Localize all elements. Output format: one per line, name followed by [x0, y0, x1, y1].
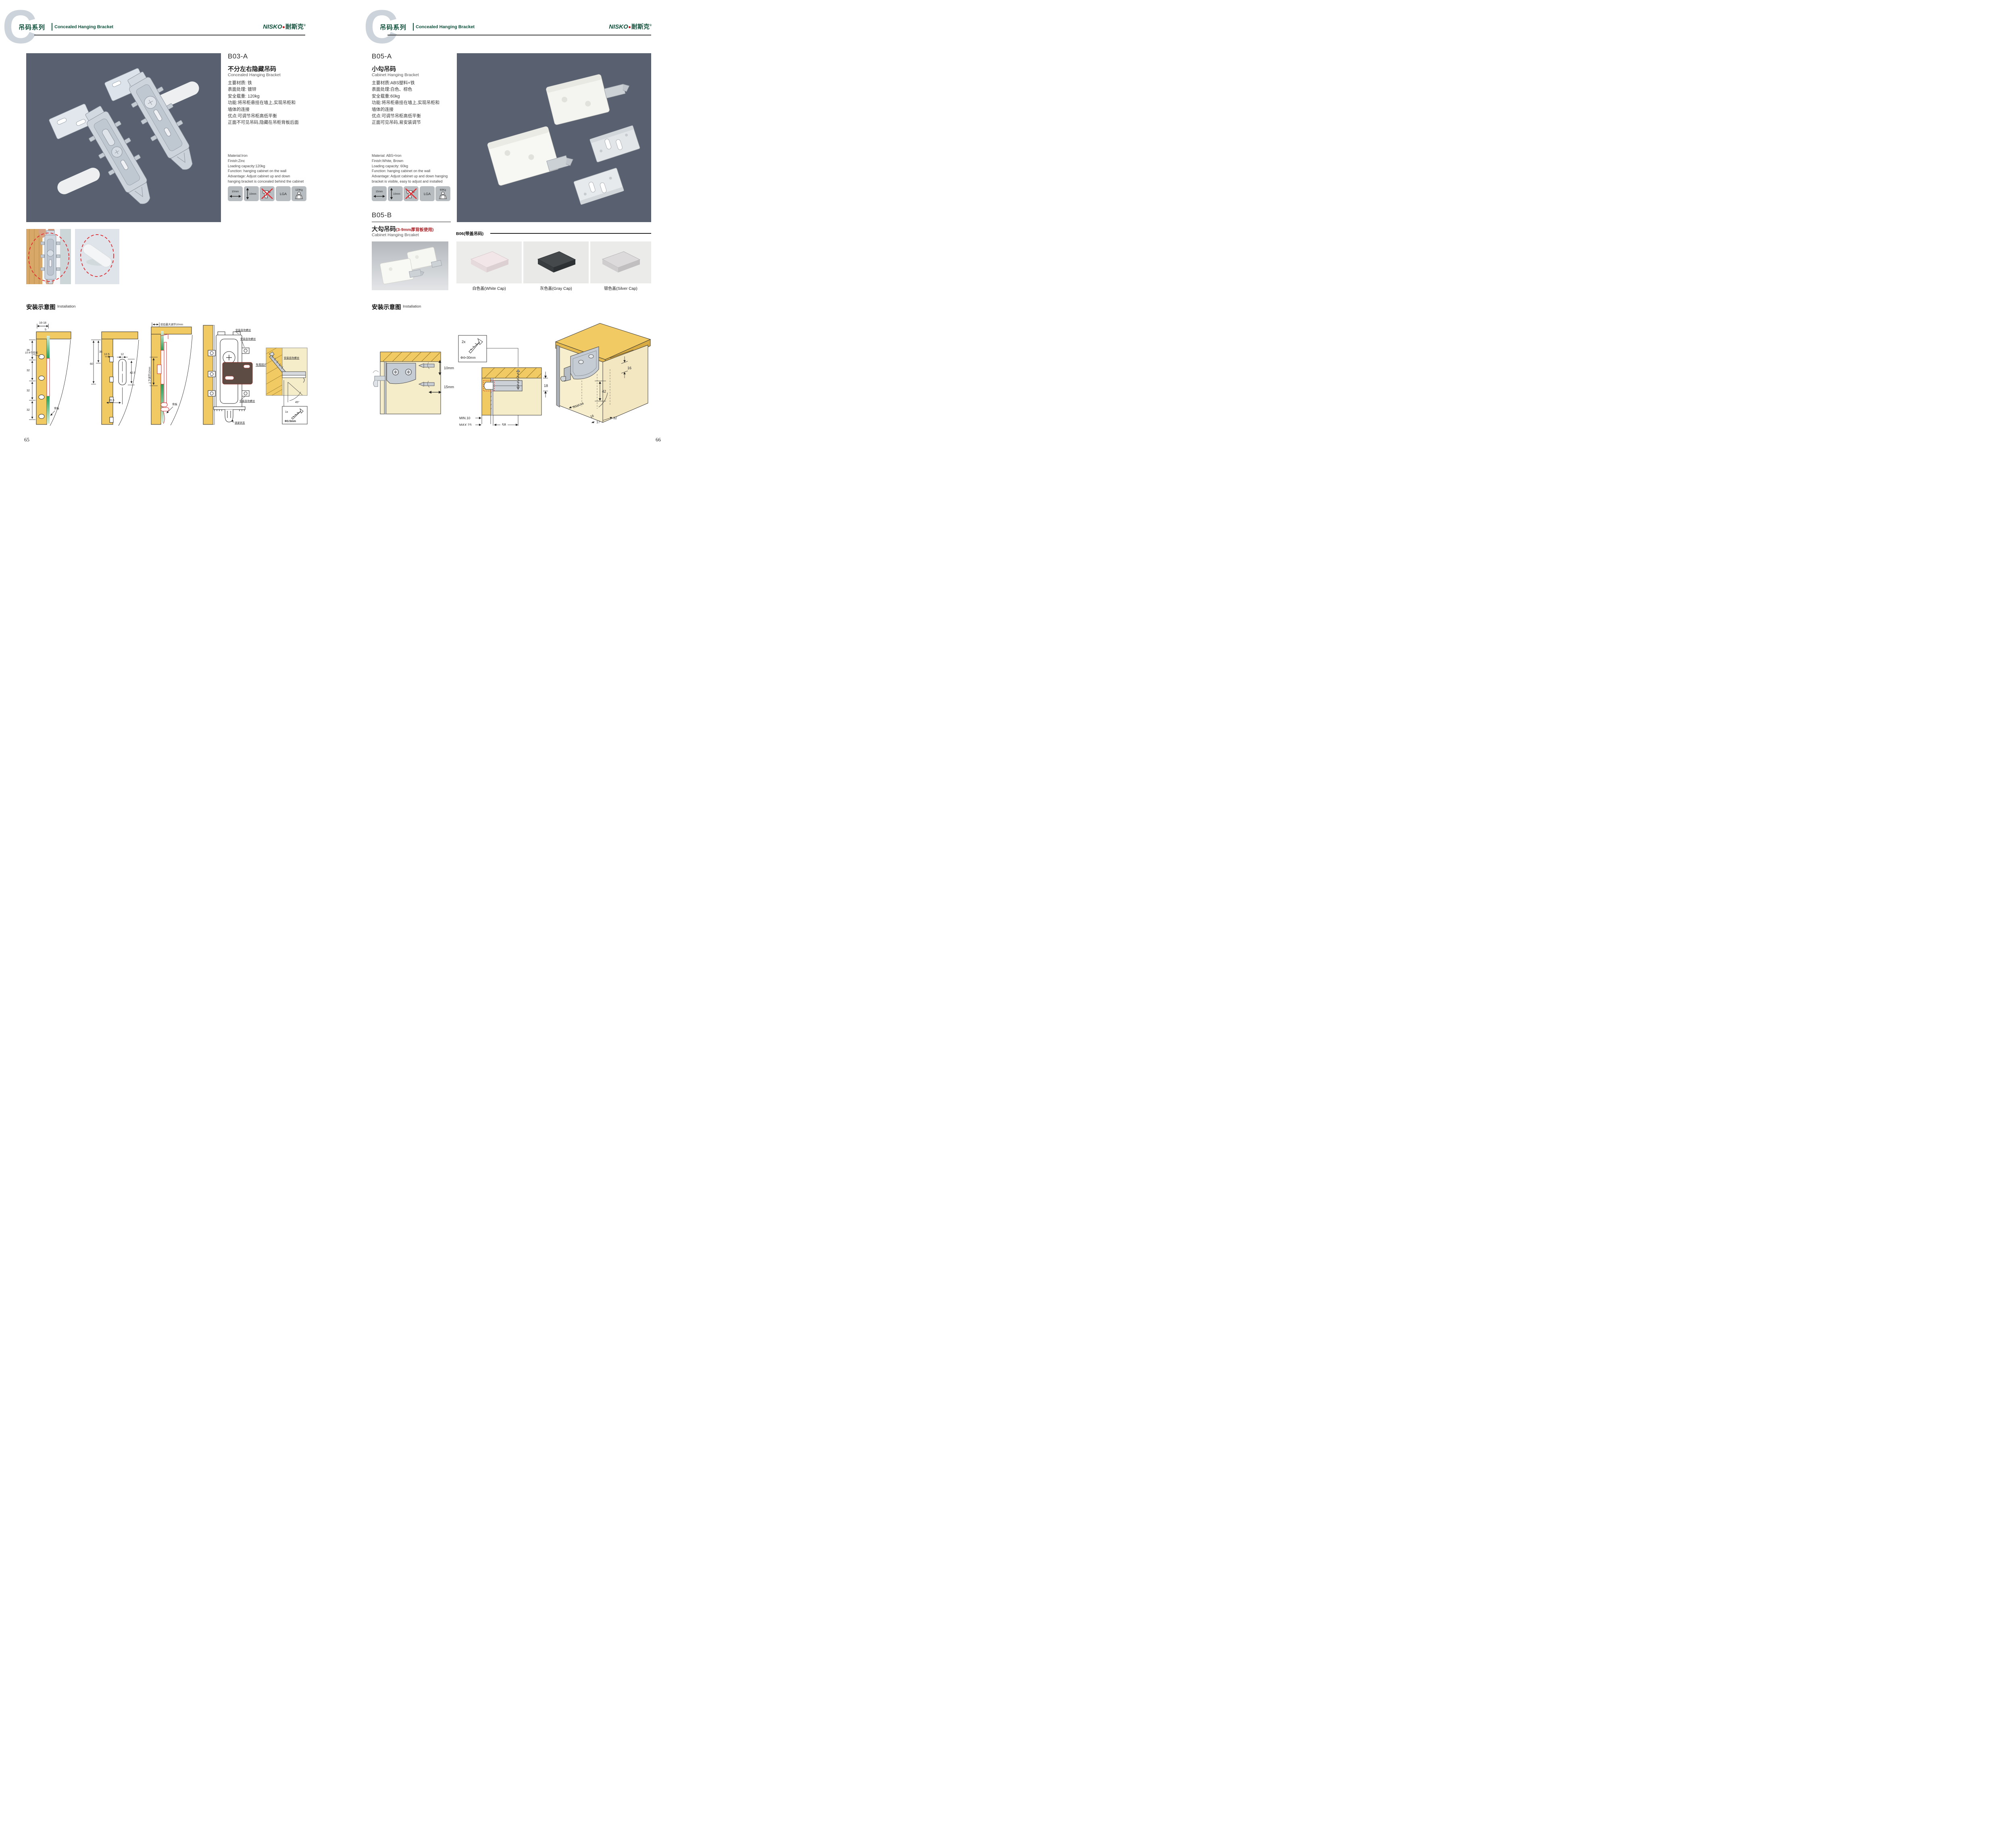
spec-line: 正面不可见吊码,隐藏在吊柜背板后面 [228, 119, 308, 126]
rdiagram3-art: 16 42 RMAX4 16 17 32 [550, 321, 656, 426]
header-rule [387, 35, 651, 35]
specs-en: Material: ABS+Iron Finish:White, Brown L… [372, 153, 456, 184]
specs-cn: 主要材质:ABS塑料+铁 表面处理:白色、棕色 安全载重:60kg 功能:将吊柜… [372, 80, 456, 126]
spec-line: bracket is visible, easy to adjust and i… [372, 179, 456, 184]
dim-12-5: 12.5 [104, 353, 110, 356]
callout-backpanel: 背板 [54, 406, 59, 410]
spec-line: 主要材质: 铁 [228, 80, 308, 86]
dim-58: 58 [502, 423, 506, 426]
spec-line: Loading capacity:120kg [228, 164, 308, 169]
install-photo-cap-art [75, 229, 119, 284]
spec-line: 主要材质:ABS塑料+铁 [372, 80, 456, 86]
b05b-note: (3-9mm厚背板使用) [396, 227, 433, 232]
screw-dia: Φ3.5mm [285, 420, 296, 423]
brand-logo-cn: 耐斯克 [631, 23, 650, 30]
panel-width-icon: 10mm [228, 186, 243, 201]
dim-42-5: 42.5 [130, 372, 135, 374]
specs-cn: 主要材质: 铁 表面处理: 镀锌 安全载重: 120kg 功能:将吊柜悬挂在墙上… [228, 80, 308, 126]
panel-height-icon: 10mm [244, 186, 259, 201]
no-drill-icon [404, 186, 419, 201]
dim-42: 42 [602, 389, 606, 393]
brand-registered-mark: ® [650, 24, 652, 27]
callout-backpanel: 背板 [172, 402, 177, 406]
series-title-cn: 吊码系列 [19, 23, 45, 31]
spec-line: 优点:可调节吊柜高低平衡 [372, 113, 456, 119]
adjust-dim-horizontal: 15mm [444, 385, 454, 389]
install-diagram-slot-dims: 60 35 12.5 12 42.5 20.5 [90, 320, 140, 428]
dim-5: 5 [45, 329, 46, 331]
callout-screw-inset: 安装自攻螺丝 [284, 356, 300, 360]
label-up-down-adjust: 上下调节10mm [148, 367, 151, 384]
spec-line: hanging bracket is concealed behind the … [228, 179, 308, 184]
install-photo-bracket-art [26, 229, 71, 284]
product-name-en: Cabinet Hanging Bracket [372, 73, 419, 77]
dim-45deg: 45° [295, 401, 300, 404]
load-capacity-icon: 120Kg [292, 186, 306, 201]
cap-label-white: 白色盖(White Cap) [456, 285, 522, 291]
screw-qty: 1x [285, 411, 288, 414]
brand-logo-dot-icon [283, 26, 285, 28]
dim-18: 18 [544, 384, 548, 388]
page-number: 66 [656, 437, 661, 443]
product-code-b05b: B05-B [372, 211, 392, 219]
no-drill-icon [260, 186, 275, 201]
spec-line: Finish:Zinc [228, 158, 308, 164]
panel-width-label: 10mm [232, 190, 239, 193]
product-name-en: Concealed Hanging Bracket [228, 73, 281, 77]
screw-dia: Φ4×30mm [460, 356, 476, 360]
spec-line: Function: hanging cabinet on the wall [372, 168, 456, 174]
cap-label-silver: 银色盖(Silver Cap) [590, 285, 651, 291]
product-photo-b05a [457, 53, 651, 222]
spec-line: Advantage: Adjust cabinet up and down ha… [372, 174, 456, 179]
b06-title: B06(带盖吊码) [456, 231, 483, 237]
spec-line: 表面处理:白色、棕色 [372, 86, 456, 93]
spec-line: Material: ABS+Iron [372, 153, 456, 158]
spec-line: Finish:White, Brown [372, 158, 456, 164]
product-name-en-b05b: Cabinet Hanging Brcaket [372, 233, 419, 237]
product-name-cn: 不分左右隐藏吊码 [228, 64, 276, 73]
panel-height-label: 10mm [249, 193, 256, 196]
cap-label-gray: 灰色盖(Gray Cap) [523, 285, 589, 291]
brand-logo: NISKO耐斯克® [259, 22, 306, 31]
install-diagram-isometric: 16 42 RMAX4 16 17 32 [550, 321, 656, 426]
cap-photo-gray [523, 241, 589, 283]
header-divider [413, 23, 414, 31]
b05b-underline [372, 222, 451, 222]
installation-title-cn: 安装示意图 [26, 303, 56, 311]
rdiagram2-art: 2x Φ4×30mm 18 MIN.10 [458, 333, 550, 426]
spec-line: 墙体的连接 [228, 106, 308, 113]
panel-height-label: 10mm [393, 193, 400, 196]
diagram4-art: 安装自攻螺丝 安装自攻螺丝 安装自攻螺丝 锁紧状态 [202, 320, 256, 428]
installation-title-cn: 安装示意图 [372, 303, 401, 311]
install-detail-inset: 安装自攻螺丝 45° 1x Φ3.5mm [263, 342, 310, 426]
install-diagram-adjust: 前后最大调节10mm 上下调节10mm 背板 [147, 320, 196, 428]
load-label: 120Kg [295, 189, 303, 191]
spec-line: 墙体的连接 [372, 106, 456, 113]
b06-rule [490, 233, 651, 234]
product-name-cn-b05b: 大勾吊码(3-9mm厚背板使用) [372, 225, 433, 233]
callout-lock-state: 锁紧状态 [235, 421, 245, 424]
catalog-spread: C 吊码系列 Concealed Hanging Bracket NISKO耐斯… [0, 0, 676, 462]
lga-label: LGA [423, 192, 430, 196]
panel-width-icon: 15mm [372, 186, 387, 201]
product-photo-b03a [26, 53, 221, 222]
spec-line: 功能:将吊柜悬挂在墙上,实现吊柜和 [372, 100, 456, 106]
dim-32: 32 [27, 389, 30, 392]
dim-32: 32 [613, 416, 617, 420]
load-capacity-icon: 60Kg [435, 186, 450, 201]
dim-35: 35 [99, 351, 102, 354]
spec-line: 表面处理: 镀锌 [228, 86, 308, 93]
callout-screw-top2: 安装自攻螺丝 [240, 337, 256, 341]
spec-line: Material:Iron [228, 153, 308, 158]
install-photo-bracket [26, 229, 71, 284]
lga-icon: LGA [276, 186, 291, 201]
product-photo-b03a-art [26, 53, 221, 222]
dim-min10: MIN.10 [459, 416, 471, 420]
product-name-cn: 小勾吊码 [372, 64, 396, 73]
dim-max23: MAX.23 [459, 423, 472, 426]
brand-logo-dot-icon [629, 26, 631, 28]
label-front-back-adjust: 前后最大调节10mm [160, 322, 183, 326]
diagram3-art: 前后最大调节10mm 上下调节10mm 背板 [147, 320, 196, 428]
dim-20-5: 20.5 [109, 399, 115, 402]
callout-screw-bottom: 安装自攻螺丝 [240, 399, 255, 403]
inset-art: 安装自攻螺丝 45° 1x Φ3.5mm [263, 342, 310, 426]
spec-line: 功能:将吊柜悬挂在墙上,实现吊柜和 [228, 100, 308, 106]
load-label: 60Kg [440, 189, 446, 191]
install-diagram-hook: 10mm 15mm [372, 341, 455, 423]
brand-logo: NISKO耐斯克® [605, 22, 652, 31]
b05b-name: 大勾吊码 [372, 226, 396, 233]
cap-photo-silver [590, 241, 651, 283]
panel-width-label: 15mm [376, 190, 383, 193]
spec-line: 优点:可调节吊柜高低平衡 [228, 113, 308, 119]
dim-16-18: 16-18 [39, 322, 46, 324]
spec-line: 安全载重:60kg [372, 93, 456, 100]
series-title-en: Concealed Hanging Bracket [416, 25, 475, 29]
screw-qty: 2x [462, 340, 466, 344]
installation-title-en: Installation [57, 304, 75, 309]
rdiagram1-art: 10mm 15mm [372, 341, 455, 423]
brand-logo-text: NISKO [263, 23, 282, 30]
dim-16-top: 16 [627, 366, 631, 370]
header-rule [34, 35, 305, 35]
brand-logo-cn: 耐斯克 [285, 23, 304, 30]
lga-icon: LGA [420, 186, 435, 201]
dim-60: 60 [90, 363, 93, 366]
page-number: 65 [24, 437, 29, 443]
installation-title-en: Installation [403, 304, 421, 309]
page-right: C 吊码系列 Concealed Hanging Bracket NISKO耐斯… [338, 0, 676, 462]
lga-label: LGA [279, 192, 286, 196]
dim-17: 17 [596, 420, 600, 424]
callout-screw-top: 安装自攻螺丝 [235, 328, 251, 332]
product-photo-b05b-art [372, 241, 448, 290]
dim-32: 32 [27, 369, 30, 372]
diagram2-art: 60 35 12.5 12 42.5 20.5 [90, 320, 140, 428]
specs-en: Material:Iron Finish:Zinc Loading capaci… [228, 153, 308, 184]
spec-line: Function: hanging cabinet on the wall [228, 168, 308, 174]
product-photo-b05a-art [457, 53, 651, 222]
product-code: B03-A [228, 52, 248, 60]
product-photo-b05b [372, 241, 448, 290]
product-code: B05-A [372, 52, 392, 60]
install-diagram-section: 2x Φ4×30mm 18 MIN.10 [458, 333, 550, 426]
install-diagram-bracket-front: 安装自攻螺丝 安装自攻螺丝 安装自攻螺丝 锁紧状态 [202, 320, 256, 428]
feature-icons: 10mm 10mm LGA 120Kg [228, 186, 306, 201]
adjust-dim-vertical: 10mm [444, 366, 454, 370]
panel-height-icon: 10mm [388, 186, 403, 201]
series-title-cn: 吊码系列 [380, 23, 406, 31]
feature-icons: 15mm 10mm LGA 60Kg [372, 186, 450, 201]
dim-12: 12 [121, 353, 124, 356]
install-photo-cap [75, 229, 119, 284]
install-diagram-side-dims: 16-18 5 35 32 32 32 [25, 320, 73, 428]
spec-line: 安全载重: 120kg [228, 93, 308, 100]
diagram1-art: 16-18 5 35 32 32 32 [25, 320, 73, 428]
callout-holes: 10-4个均布 [25, 351, 38, 354]
spec-line: 正面可见吊码,易安装调节 [372, 119, 456, 126]
cap-photo-white [456, 241, 522, 283]
brand-registered-mark: ® [304, 24, 306, 27]
page-left: C 吊码系列 Concealed Hanging Bracket NISKO耐斯… [0, 0, 338, 462]
series-title-en: Concealed Hanging Bracket [54, 25, 113, 29]
brand-logo-text: NISKO [609, 23, 628, 30]
header-divider [52, 23, 52, 31]
spec-line: Loading capacity: 60kg [372, 164, 456, 169]
spec-line: Advantage: Adjust cabinet up and down [228, 174, 308, 179]
dim-32: 32 [27, 409, 30, 412]
